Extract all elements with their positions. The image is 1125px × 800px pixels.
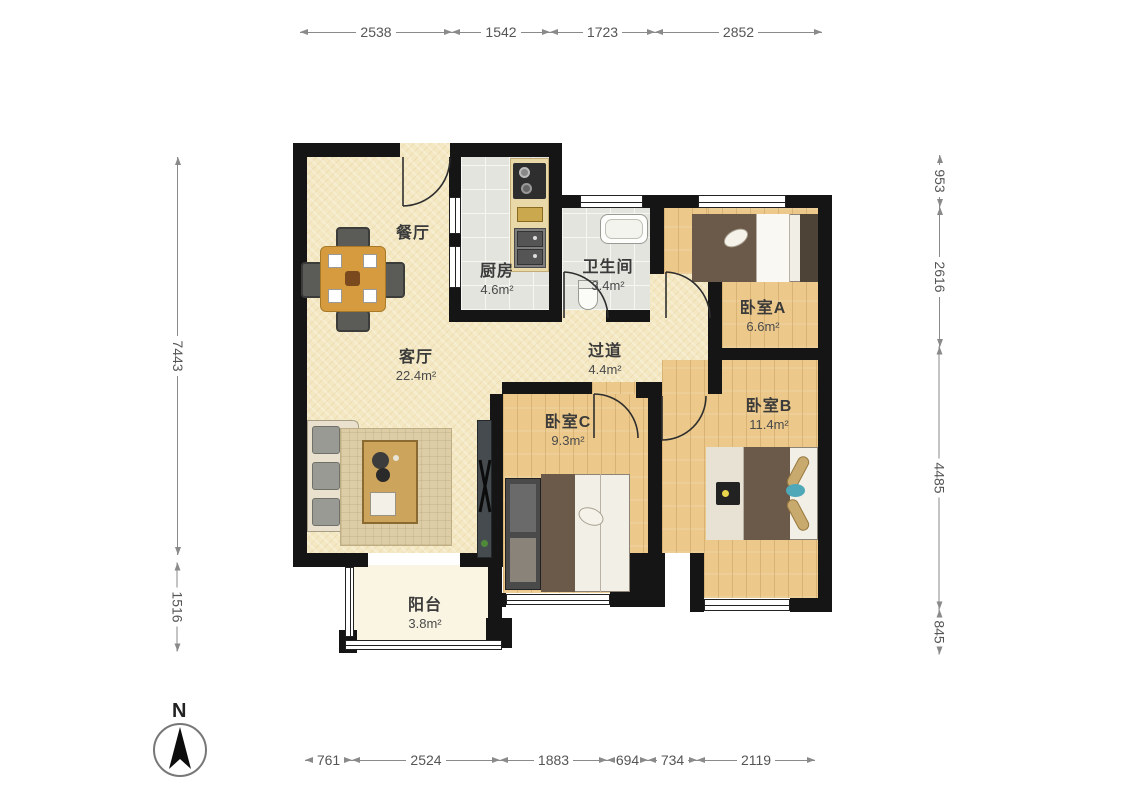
wall-a-b-divider: [708, 348, 818, 360]
dim-left-1: 7443: [168, 157, 188, 555]
entrance-threshold: [400, 143, 450, 159]
bathtub-inner: [605, 219, 643, 239]
bedroom-b-floor2: [704, 553, 818, 598]
dining-plate-2: [363, 254, 377, 268]
bedroom-b-laptop-dot: [722, 490, 729, 497]
bedroom-a-blanket: [692, 214, 756, 282]
bedroom-b-teal-pillow: [786, 484, 805, 497]
dim-left-2: 1516: [168, 563, 188, 652]
dim-right-1: 953: [930, 155, 950, 207]
dining-plate-3: [328, 289, 342, 303]
dim-right-3: 4485: [930, 347, 950, 610]
bedroom-a-headboard: [800, 214, 818, 282]
dining-plate-4: [363, 289, 377, 303]
label-bedroom-b: 卧室B 11.4m²: [746, 397, 793, 433]
bedroom-c-wardrobe-inner2: [510, 538, 536, 582]
balcony-bottom-window: [345, 640, 502, 650]
wall-c-right: [648, 394, 662, 555]
compass-icon: [154, 724, 206, 776]
dim-bottom-5: 734: [648, 750, 697, 770]
bedroom-c-door-floor: [592, 382, 636, 394]
wall-right: [818, 195, 832, 612]
label-kitchen: 厨房 4.6m²: [480, 262, 514, 298]
dim-bottom-2: 2524: [352, 750, 500, 770]
wall-hall-right: [708, 274, 722, 394]
wall-kitchen-right: [549, 143, 562, 322]
wall-b-top-left: [502, 382, 592, 394]
label-living: 客厅 22.4m²: [396, 348, 436, 384]
wall-bath-right: [650, 208, 664, 274]
bathroom-window: [580, 195, 643, 208]
kitchen-divider-window-top: [449, 197, 461, 234]
dim-right-4: 845: [930, 610, 950, 655]
wall-left: [293, 143, 307, 567]
sink-dot-2: [533, 254, 537, 258]
wall-kitchen-left-top: [449, 157, 461, 197]
dim-bottom-4: 694: [607, 750, 648, 770]
sofa-cushion-3: [312, 498, 340, 526]
stove-burner-2: [521, 183, 532, 194]
balcony-left-window: [345, 567, 354, 637]
dim-top-3: 1723: [550, 22, 655, 42]
wall-kitchen-left-mid: [449, 234, 461, 246]
label-dining: 餐厅: [396, 224, 430, 244]
dining-plate-1: [328, 254, 342, 268]
stove-burner-1: [519, 167, 530, 178]
bedroom-a-pillow-strip: [756, 214, 790, 282]
dim-top-4: 2852: [655, 22, 822, 42]
wall-top-mid: [450, 143, 562, 157]
bedroom-c-blanket: [541, 474, 575, 592]
bedroom-b-blanket: [744, 447, 790, 540]
stove: [513, 163, 546, 199]
wall-living-bottom-left: [293, 553, 368, 567]
floor-plan: N 餐厅 厨房 4.6m² 卫生间 3.4m² 卧室A 6.6m² 客厅 22.…: [0, 0, 1125, 800]
wall-kitchen-bottom: [449, 310, 562, 322]
wall-bath-top-b: [643, 195, 698, 208]
bedroom-a-window: [698, 195, 786, 208]
label-bedroom-c: 卧室C 9.3m²: [545, 413, 592, 449]
dim-bottom-3: 1883: [500, 750, 607, 770]
bedroom-c-window: [506, 594, 610, 605]
dim-bottom-1: 761: [305, 750, 352, 770]
dim-bottom-6: 2119: [697, 750, 815, 770]
sofa-cushion-2: [312, 462, 340, 490]
sink-basin-2: [517, 249, 543, 265]
toaster: [517, 207, 543, 222]
bedroom-c-pillow-line: [600, 474, 601, 592]
sink-dot-1: [533, 236, 537, 240]
wall-top-left: [293, 143, 400, 157]
label-balcony: 阳台 3.8m²: [408, 596, 442, 632]
bedroom-b-window: [704, 599, 790, 611]
wall-bath-top-a: [562, 195, 580, 208]
kitchen-divider-window-bottom: [449, 246, 461, 288]
label-bedroom-a: 卧室A 6.6m²: [740, 299, 787, 335]
sink-basin-1: [517, 231, 543, 247]
coffee-table-item-2: [376, 468, 390, 482]
dining-centerpiece: [345, 271, 360, 286]
bedroom-b-door-floor: [662, 382, 708, 394]
compass-north-label: N: [172, 700, 186, 723]
wall-b-bottom-right: [790, 598, 832, 612]
dim-right-2: 2616: [930, 207, 950, 347]
coffee-table-tray: [370, 492, 396, 516]
label-bathroom: 卫生间 3.4m²: [582, 258, 633, 294]
dim-top-1: 2538: [300, 22, 452, 42]
coffee-table-item-3: [393, 455, 399, 461]
bedroom-c-wardrobe-inner: [510, 484, 536, 532]
dining-chair-bottom: [336, 310, 370, 332]
coffee-table-item-1: [372, 452, 389, 469]
dining-chair-right: [383, 262, 405, 298]
wall-b-left-low: [690, 553, 704, 612]
tv-plant: [481, 540, 488, 547]
dim-top-2: 1542: [452, 22, 550, 42]
sofa-cushion-1: [312, 426, 340, 454]
tv-cabinet: [477, 420, 492, 558]
label-hallway: 过道 4.4m²: [588, 342, 622, 378]
wall-bath-bottom: [606, 310, 650, 322]
